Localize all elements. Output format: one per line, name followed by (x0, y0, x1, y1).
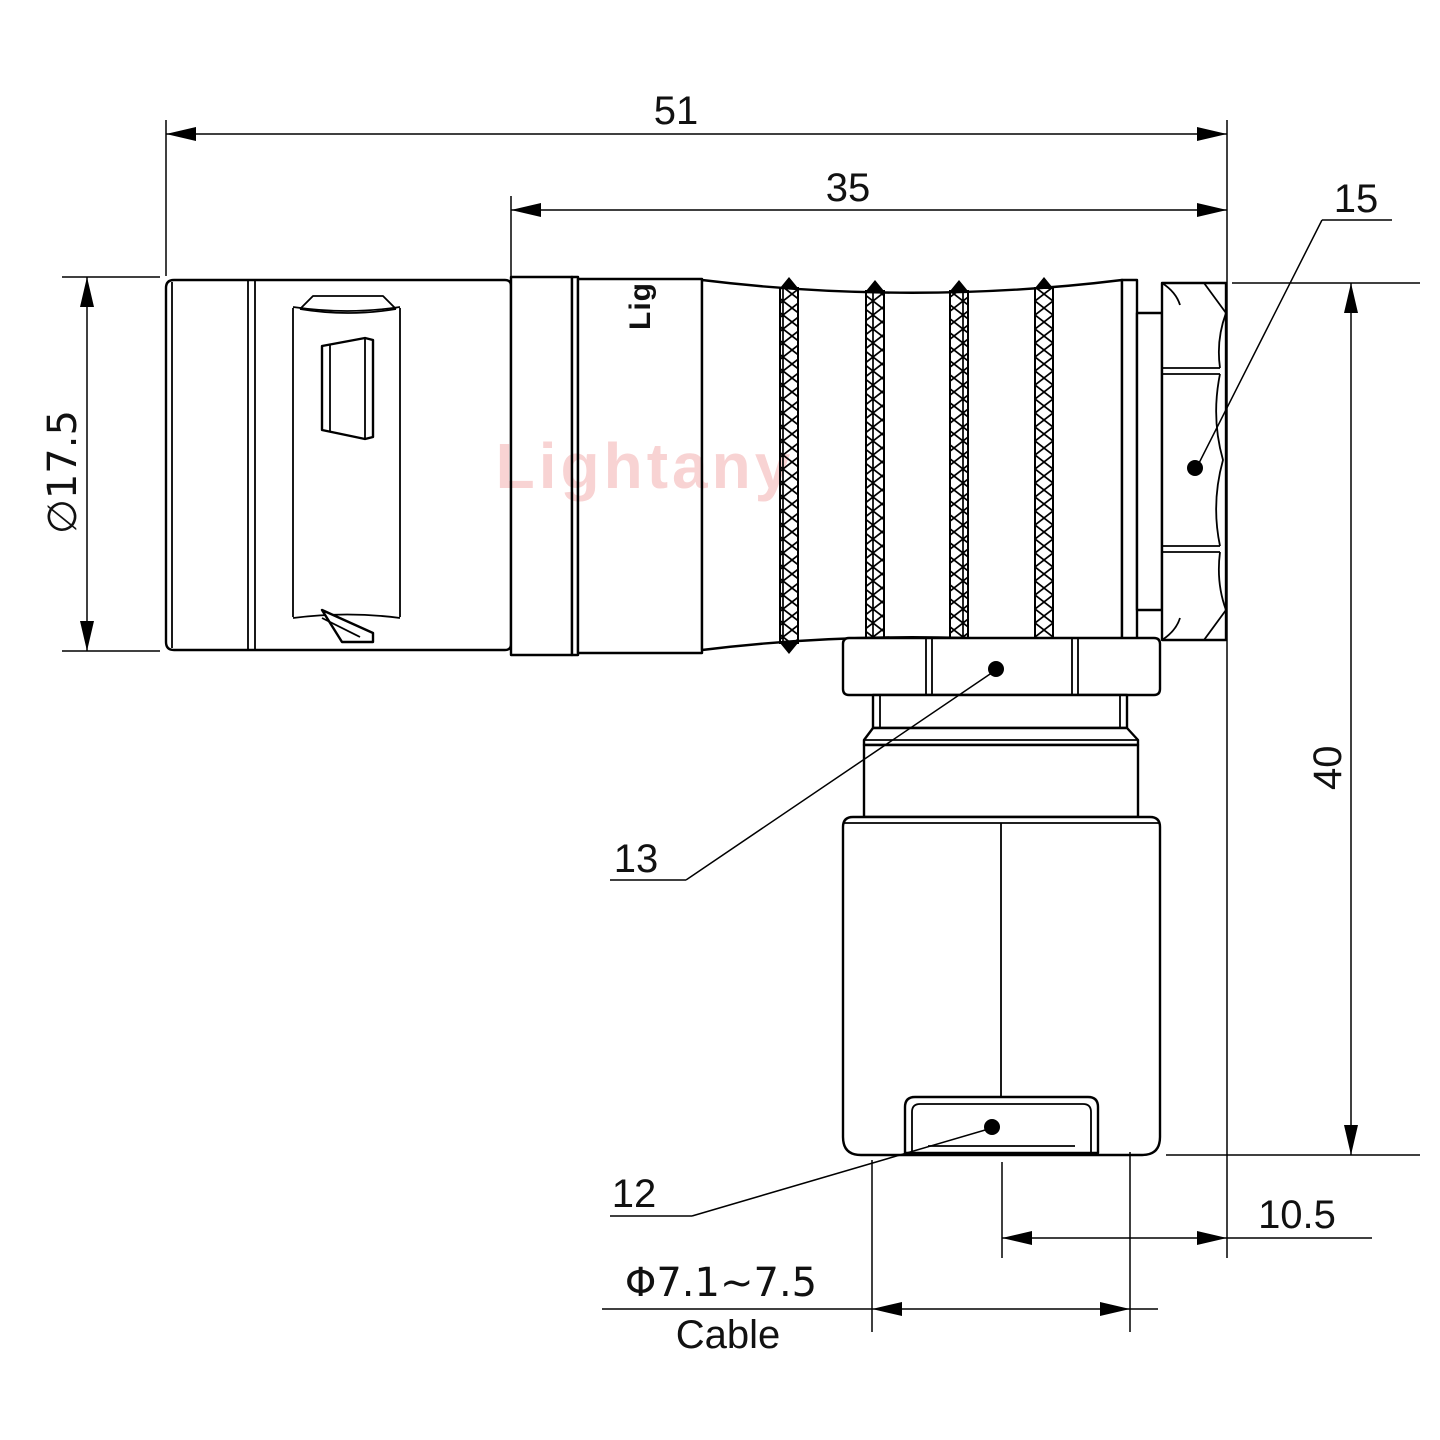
item-15-label: 15 (1334, 177, 1379, 221)
elbow-barrel (864, 745, 1138, 817)
connector-side-view (166, 277, 1226, 1155)
cable-diameter-label: Φ7.1~7.5 (625, 1260, 817, 1306)
grip-rear-rim (1122, 280, 1137, 641)
rear-neck (1137, 313, 1162, 610)
item-12-label: 12 (612, 1172, 657, 1216)
elbow-neck (864, 695, 1138, 817)
body-brand-mark: Lig (624, 282, 657, 330)
plug-body (166, 280, 511, 650)
keyway-block (322, 338, 373, 439)
dim-51-label: 51 (654, 89, 699, 133)
dim-17-5-label: ∅17.5 (40, 410, 86, 534)
dim-cable-diameter: Φ7.1~7.5 Cable (602, 1152, 1158, 1357)
dim-center-to-face: 10.5 (1002, 1162, 1372, 1258)
dim-35-label: 35 (826, 166, 871, 210)
dim-40-label: 40 (1306, 746, 1350, 791)
watermark: Lightany (496, 430, 795, 502)
dim-plug-diameter: ∅17.5 (40, 277, 160, 651)
item-13-label: 13 (614, 837, 659, 881)
cable-word-label: Cable (676, 1313, 781, 1357)
dim-10-5-label: 10.5 (1258, 1193, 1336, 1237)
crimp-sleeve (843, 817, 1160, 1155)
technical-drawing-page: Lightany Lig 51 35 ∅17.5 40 (0, 0, 1440, 1440)
dim-grip-length: 35 (511, 166, 1227, 276)
connector-elbow-drawing: Lightany Lig 51 35 ∅17.5 40 (0, 0, 1440, 1440)
